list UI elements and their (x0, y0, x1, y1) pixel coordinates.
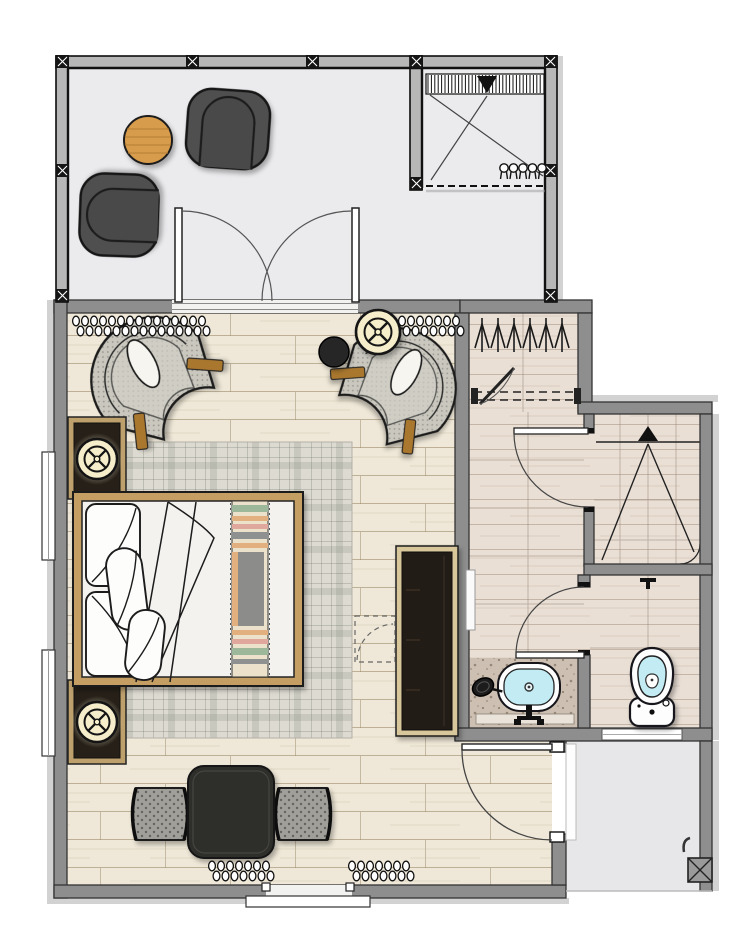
striped-throw (231, 501, 270, 677)
wall-shower-top (578, 402, 712, 414)
shower-door-opening (584, 433, 594, 507)
table-lamp (77, 702, 117, 742)
toilet (630, 648, 674, 726)
shelf-bracket-left (471, 388, 478, 404)
terrace-round-table (124, 116, 172, 164)
wall-recess-panel (466, 570, 475, 630)
nightstand-upper (68, 417, 126, 499)
shelf-bracket-right (574, 388, 581, 404)
door-leaf-left (175, 208, 182, 302)
table-lamp (77, 439, 117, 479)
entry-door-leaf (462, 744, 552, 750)
door-leaf-right (352, 208, 359, 302)
floor-plan-canvas (0, 0, 743, 940)
toilet-door-opening (578, 587, 590, 655)
terrace-lounge-chair-left (79, 173, 160, 258)
floor-plan-drawing (0, 0, 743, 940)
upholstered-bench-left (133, 788, 188, 840)
bolster-pillow-2 (123, 608, 166, 681)
nightstand-lower (68, 680, 126, 764)
wall-shower-vestibule (584, 507, 594, 566)
bed (73, 492, 303, 686)
wall-closet-top (460, 300, 592, 313)
square-table (188, 766, 274, 858)
upholstered-bench-right (276, 788, 331, 840)
wood-armrest (187, 358, 224, 371)
wood-armrest (330, 367, 365, 380)
tv-console (396, 546, 458, 736)
dark-side-table (319, 337, 349, 367)
flush-button (649, 709, 654, 714)
entry-jamb-lower (550, 832, 564, 842)
entry-threshold (566, 744, 576, 840)
wall-bathroom-right (700, 414, 712, 740)
entry-walkway-floor (566, 741, 700, 891)
wall-bedroom-left (54, 300, 67, 898)
basin (498, 663, 560, 711)
tray-top-table (356, 310, 400, 354)
shower-door-leaf (514, 428, 588, 434)
bedroom-floor-extension (455, 741, 552, 885)
toilet-door-leaf (516, 652, 584, 658)
wall-toilet-vestibule (578, 655, 590, 728)
terrace-lounge-chair-top (184, 87, 271, 171)
vestibule-floor (469, 412, 584, 658)
wall-shower-toilet (584, 564, 712, 575)
window-bottom-sill (246, 896, 370, 907)
